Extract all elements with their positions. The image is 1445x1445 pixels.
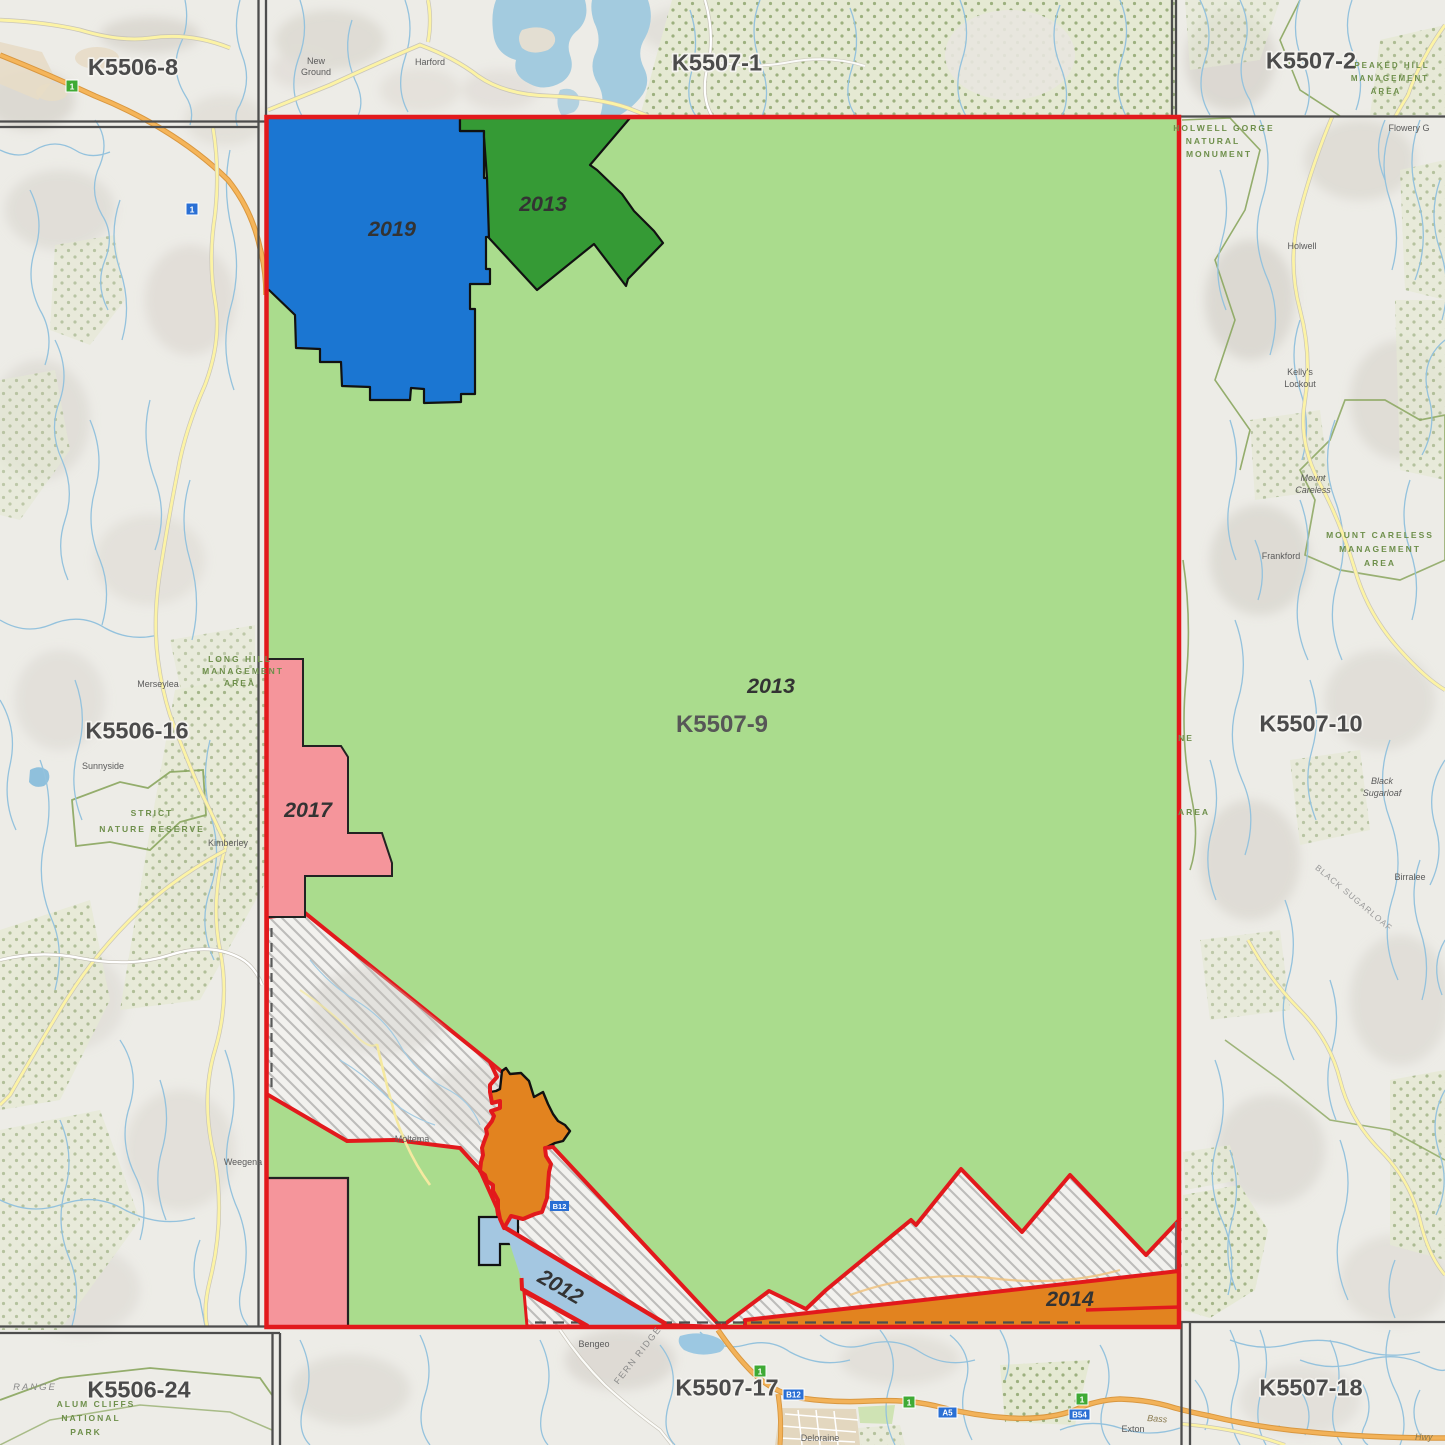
svg-text:MONUMENT: MONUMENT — [1186, 149, 1252, 159]
svg-text:AREA: AREA — [1371, 87, 1402, 96]
svg-text:ALUM CLIFFS: ALUM CLIFFS — [57, 1399, 136, 1409]
svg-text:B54: B54 — [1072, 1411, 1087, 1420]
svg-text:NATURAL: NATURAL — [1186, 136, 1240, 146]
svg-text:Hwy: Hwy — [1415, 1432, 1433, 1442]
svg-text:1: 1 — [1080, 1395, 1085, 1405]
svg-text:Merseylea: Merseylea — [137, 679, 179, 689]
svg-text:2019: 2019 — [367, 217, 416, 241]
svg-text:1: 1 — [70, 82, 75, 92]
svg-text:LONG HILL: LONG HILL — [208, 654, 272, 664]
svg-text:Lockout: Lockout — [1284, 379, 1316, 389]
svg-text:Kelly's: Kelly's — [1287, 367, 1313, 377]
svg-text:Exton: Exton — [1121, 1424, 1144, 1434]
svg-text:Careless: Careless — [1295, 485, 1331, 495]
svg-text:Mount: Mount — [1300, 473, 1326, 483]
svg-text:Kimberley: Kimberley — [208, 838, 249, 848]
svg-text:MANAGEMENT: MANAGEMENT — [202, 666, 284, 676]
svg-text:MANAGEMENT: MANAGEMENT — [1339, 544, 1421, 554]
svg-text:HOLWELL GORGE: HOLWELL GORGE — [1173, 123, 1274, 133]
svg-text:2017: 2017 — [283, 798, 333, 822]
svg-text:Ground: Ground — [301, 67, 331, 77]
svg-text:1: 1 — [758, 1367, 763, 1377]
svg-text:AREA: AREA — [1364, 558, 1396, 568]
svg-text:PARK: PARK — [70, 1427, 101, 1437]
svg-text:2013: 2013 — [518, 192, 567, 216]
svg-text:New: New — [307, 56, 326, 66]
svg-text:2013: 2013 — [746, 674, 795, 698]
svg-text:Deloraine: Deloraine — [801, 1433, 840, 1443]
svg-text:Sunnyside: Sunnyside — [82, 761, 124, 771]
svg-text:B12: B12 — [786, 1391, 801, 1400]
svg-text:K5507-17: K5507-17 — [675, 1375, 778, 1401]
svg-text:Frankford: Frankford — [1262, 551, 1301, 561]
svg-text:Black: Black — [1371, 776, 1394, 786]
svg-text:K5506-8: K5506-8 — [88, 54, 178, 80]
svg-text:NE: NE — [1178, 733, 1194, 743]
svg-text:B12: B12 — [553, 1202, 567, 1211]
svg-text:Flowery G: Flowery G — [1388, 123, 1429, 133]
svg-text:K5507-1: K5507-1 — [672, 50, 762, 76]
svg-text:NATIONAL: NATIONAL — [61, 1413, 120, 1423]
svg-text:Bengeo: Bengeo — [578, 1339, 609, 1349]
svg-text:K5507-10: K5507-10 — [1259, 711, 1362, 737]
svg-text:MANAGEMENT: MANAGEMENT — [1351, 74, 1429, 83]
svg-text:Weegena: Weegena — [224, 1157, 262, 1167]
svg-text:Birralee: Birralee — [1394, 872, 1425, 882]
svg-text:K5507-2: K5507-2 — [1266, 48, 1356, 74]
svg-text:AREA: AREA — [224, 678, 256, 688]
svg-text:Harford: Harford — [415, 57, 445, 67]
svg-text:STRICT: STRICT — [131, 808, 174, 818]
svg-text:A5: A5 — [942, 1409, 953, 1418]
svg-text:Sugarloaf: Sugarloaf — [1363, 788, 1403, 798]
svg-text:Moltema: Moltema — [395, 1134, 430, 1144]
svg-text:MOUNT CARELESS: MOUNT CARELESS — [1326, 530, 1434, 540]
svg-text:K5507-9: K5507-9 — [676, 711, 768, 738]
svg-text:K5507-18: K5507-18 — [1259, 1375, 1362, 1401]
svg-text:Holwell: Holwell — [1287, 241, 1316, 251]
svg-text:1: 1 — [907, 1398, 912, 1408]
svg-text:PEAKED HILL: PEAKED HILL — [1354, 61, 1429, 70]
svg-text:Bass: Bass — [1147, 1413, 1168, 1424]
svg-text:AREA: AREA — [1178, 807, 1210, 817]
svg-text:2014: 2014 — [1045, 1287, 1094, 1311]
svg-text:K5506-16: K5506-16 — [85, 718, 188, 744]
svg-text:NATURE RESERVE: NATURE RESERVE — [99, 824, 205, 834]
svg-text:RANGE: RANGE — [13, 1382, 57, 1393]
svg-text:1: 1 — [190, 205, 195, 215]
